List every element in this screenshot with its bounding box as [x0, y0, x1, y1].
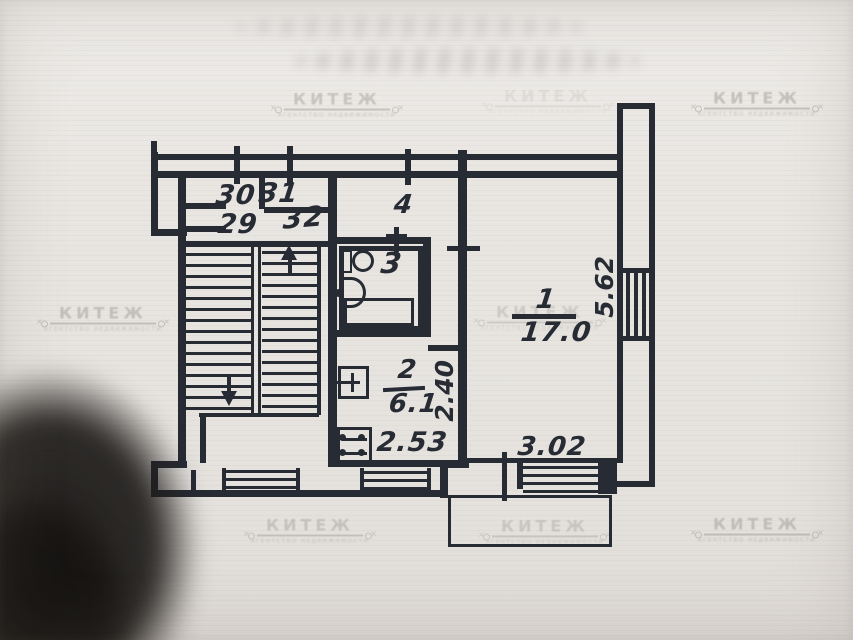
room-label-4: 4	[392, 192, 414, 218]
stove-icon	[337, 427, 372, 464]
right-wall-cap	[617, 103, 655, 109]
stove-burner	[339, 434, 346, 441]
room-1-number: 1	[534, 286, 557, 313]
window-line	[224, 486, 298, 489]
stair-down-arrow-stem	[227, 374, 231, 393]
stair-right-rail	[317, 247, 321, 415]
stove-burner	[358, 434, 365, 441]
left-inner-wall	[178, 171, 186, 467]
window-line	[523, 474, 599, 477]
window-line	[523, 482, 599, 485]
kitchen-room1-divider-wall	[458, 150, 467, 467]
stair-landing-line	[200, 413, 206, 463]
stair-down-arrow-icon	[221, 391, 237, 406]
left-outer-wall-top	[151, 152, 158, 236]
toilet-tank-icon	[341, 250, 352, 273]
wall-tick	[405, 149, 411, 185]
top-wall-outer-line	[152, 154, 618, 160]
dimension-5-62: 5.62	[592, 256, 617, 318]
left-wall-connector	[151, 461, 187, 468]
room-label-3: 3	[379, 249, 404, 278]
bathroom-top-wall	[330, 237, 431, 244]
corridor-label-29: 29	[216, 211, 259, 238]
stove-burner	[358, 449, 365, 456]
stair-stringer	[258, 247, 261, 417]
bathroom-inner-wall	[339, 326, 423, 331]
corridor-label-30: 30	[214, 182, 257, 209]
window-line	[363, 487, 428, 490]
top-wall-inner-line	[152, 171, 618, 178]
window-line	[363, 479, 428, 482]
dimension-3-02: 3.02	[516, 434, 587, 460]
stairwell-top-wall	[186, 241, 329, 247]
balcony-outline	[448, 495, 612, 547]
bathtub-icon	[344, 298, 414, 326]
room-1-area: 17.0	[519, 319, 593, 346]
window-line	[626, 271, 630, 338]
window-line	[224, 470, 298, 473]
bathroom-inner-wall	[418, 246, 423, 331]
bathroom-right-wall	[423, 237, 431, 337]
stair-treads-right-flight	[262, 251, 317, 415]
window-line	[523, 466, 599, 469]
door-tick	[447, 246, 480, 251]
stair-stringer	[251, 247, 254, 417]
room1-bottom-wall	[447, 460, 469, 468]
floorplan-photo: КИТЕЖ агентство недвижимости КИТЕЖ агент…	[0, 0, 853, 640]
right-wall-cap	[617, 481, 655, 487]
corner-wall-block	[598, 460, 617, 494]
room-2-number: 2	[396, 357, 418, 383]
kitchen-stub-wall	[428, 345, 459, 351]
stair-treads-left-flight	[186, 253, 251, 413]
floorplan-drawing: 30 31 29 32 4 3 2 6.1 1 17.0 2.53 2.40 3…	[0, 0, 853, 640]
window-line	[634, 271, 638, 338]
bathroom-bottom-wall	[330, 330, 431, 337]
stairwell-apartment-divider-wall	[328, 177, 337, 467]
balcony-door-tick	[502, 452, 507, 501]
window-line	[363, 471, 428, 474]
window-line	[523, 490, 599, 493]
window-line	[224, 478, 298, 481]
door-tick	[386, 234, 407, 238]
right-wall-line	[649, 103, 655, 487]
washbasin-tap-icon	[335, 289, 343, 297]
dimension-2-40: 2.40	[432, 360, 457, 422]
stove-burner	[339, 449, 346, 456]
window-line	[642, 271, 646, 338]
kitchen-sink-cross-h	[331, 381, 360, 384]
dimension-2-53: 2.53	[375, 429, 449, 456]
wall-tick	[234, 146, 240, 184]
corridor-label-32: 32	[282, 202, 324, 233]
wall-tick	[191, 470, 196, 495]
stair-up-arrow-stem	[288, 257, 292, 273]
toilet-bowl-icon	[352, 250, 374, 272]
